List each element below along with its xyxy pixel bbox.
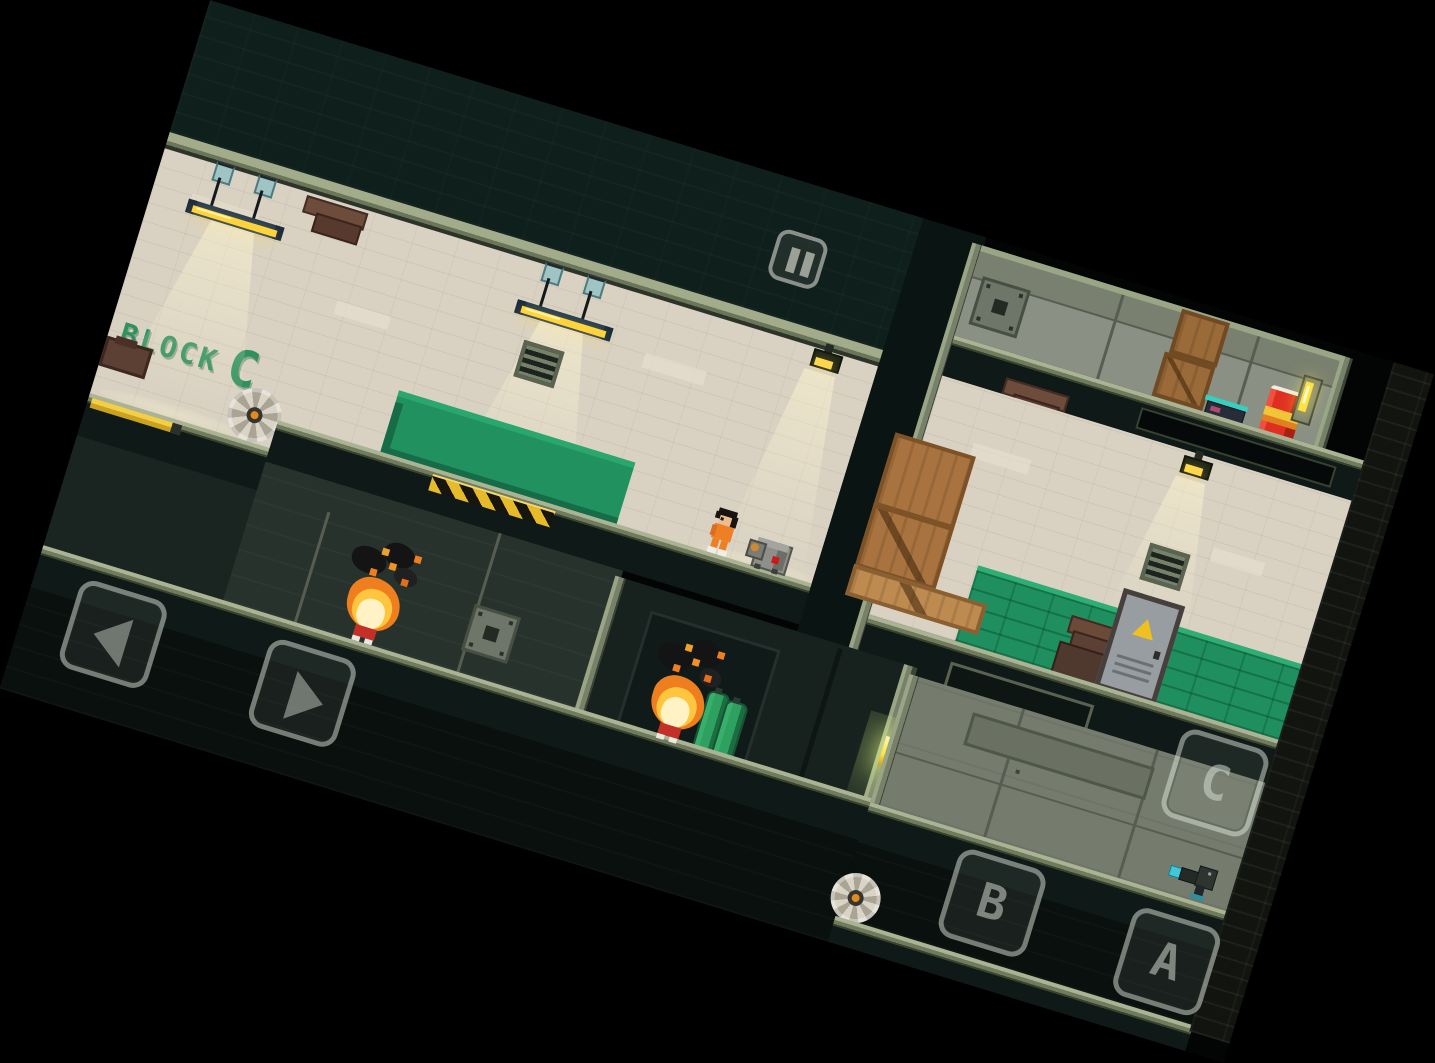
arrow-right-icon: [283, 671, 330, 729]
game-screen: BLOCKC: [0, 0, 1434, 1063]
screenshot-canvas: BLOCKC: [0, 0, 1435, 1063]
arrow-left-icon: [86, 610, 133, 668]
button-c-label: C: [1164, 732, 1266, 834]
button-b-label: B: [941, 852, 1043, 954]
pause-icon: [785, 247, 801, 274]
button-a-label: A: [1115, 911, 1217, 1013]
